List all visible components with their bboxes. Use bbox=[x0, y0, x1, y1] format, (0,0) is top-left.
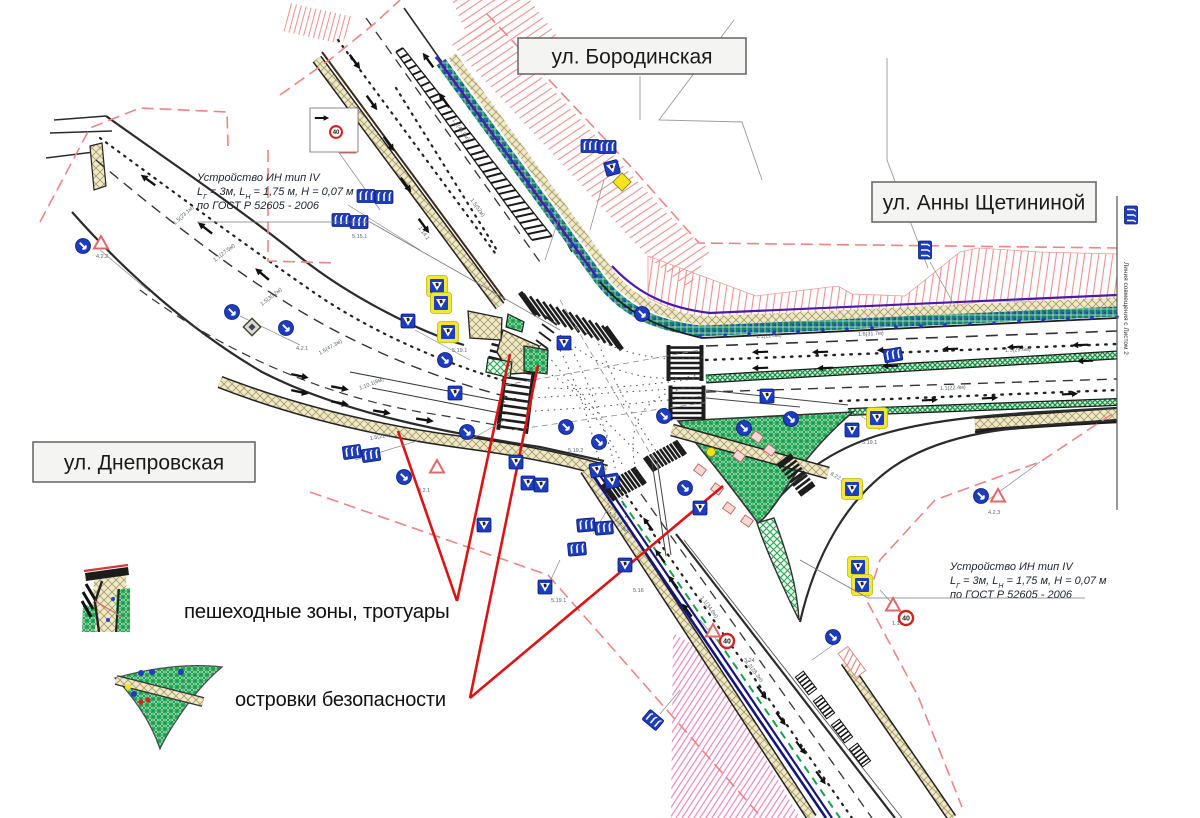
svg-text:5.15.1: 5.15.1 bbox=[352, 234, 367, 240]
svg-text:5.19.2: 5.19.2 bbox=[568, 448, 583, 454]
svg-text:Устройство ИН тип IV: Устройство ИН тип IV bbox=[949, 561, 1074, 573]
svg-text:5.19.1: 5.19.1 bbox=[862, 440, 877, 446]
svg-text:ул. Анны Щетининой: ул. Анны Щетининой bbox=[883, 192, 1085, 215]
svg-text:ул. Бородинская: ул. Бородинская bbox=[551, 46, 712, 69]
svg-text:4.2.3: 4.2.3 bbox=[988, 510, 1000, 516]
svg-text:3.24: 3.24 bbox=[744, 658, 755, 664]
svg-text:Линия совмещения с Листом 2: Линия совмещения с Листом 2 bbox=[1122, 262, 1129, 355]
svg-text:5.19.1: 5.19.1 bbox=[452, 348, 467, 354]
svg-text:пешеходные зоны, тротуары: пешеходные зоны, тротуары bbox=[184, 600, 449, 623]
svg-text:ул. Днепровская: ул. Днепровская bbox=[64, 452, 224, 475]
svg-text:5.19.1: 5.19.1 bbox=[551, 598, 566, 604]
svg-text:Устройство ИН тип IV: Устройство ИН тип IV bbox=[196, 172, 321, 184]
svg-text:4.2.1: 4.2.1 bbox=[296, 346, 308, 352]
svg-text:5.16: 5.16 bbox=[633, 588, 644, 594]
svg-text:по ГОСТ Р 52605 - 2006: по ГОСТ Р 52605 - 2006 bbox=[950, 589, 1073, 601]
svg-text:по ГОСТ Р 52605 - 2006: по ГОСТ Р 52605 - 2006 bbox=[197, 200, 320, 212]
svg-text:островки безопасности: островки безопасности bbox=[235, 689, 446, 711]
svg-text:4.2.2: 4.2.2 bbox=[96, 254, 108, 260]
